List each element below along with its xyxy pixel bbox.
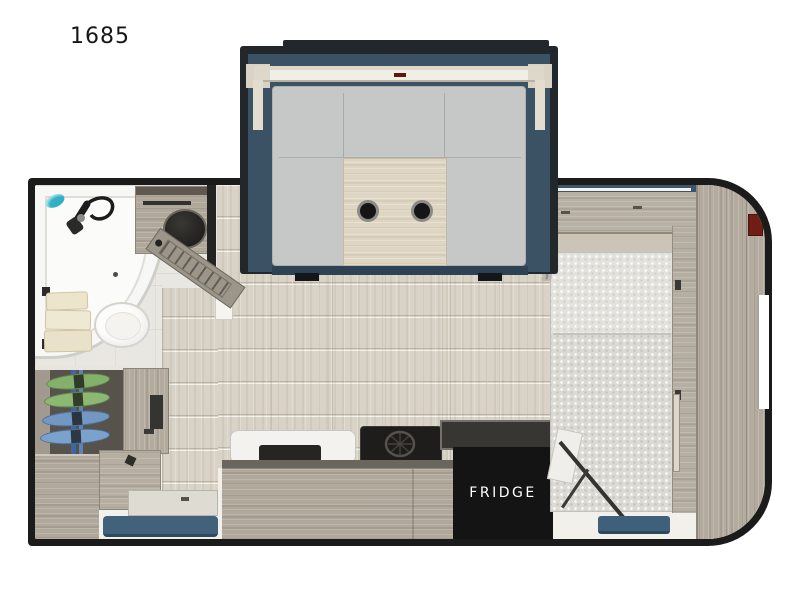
kitchen-counter-front	[222, 468, 458, 539]
cabinet-handle-icon	[144, 429, 154, 434]
gear-strap-icon	[73, 393, 84, 407]
couch-seam	[343, 93, 344, 159]
upper-cabinet	[123, 368, 169, 454]
fridge-label: FRIDGE	[469, 485, 536, 501]
headboard-latch-icon	[561, 211, 570, 214]
model-number-label: 1685	[70, 24, 130, 49]
towel-rack	[35, 280, 95, 360]
marker-light	[748, 214, 763, 236]
front-wardrobe	[696, 185, 765, 539]
vanity-backsplash	[136, 187, 207, 195]
floorplan: 1685	[0, 0, 800, 600]
slide-roller-tab	[478, 273, 502, 281]
slide-trim-pillar	[253, 80, 263, 130]
shower-head-icon	[57, 191, 127, 246]
slide-out-dinette	[240, 46, 558, 274]
toilet-seat	[105, 312, 141, 340]
slide-window-strip	[270, 70, 528, 80]
towel-bar-icon	[143, 201, 191, 205]
wardrobe-handle-icon	[673, 394, 680, 472]
slide-trim-pillar	[535, 80, 545, 130]
right-wall-window	[757, 295, 778, 409]
towel	[46, 291, 89, 310]
couch-seam	[444, 93, 445, 159]
towel	[44, 330, 92, 353]
shower-drain-icon	[113, 272, 118, 277]
mattress-seam	[553, 333, 671, 335]
burner-grate-icon	[383, 429, 417, 461]
drawer-handle-icon	[125, 455, 137, 467]
mattress-bolster	[551, 253, 673, 333]
gear-strap-icon	[73, 375, 84, 389]
bed-frame-strip	[550, 234, 674, 253]
entry-step	[128, 490, 218, 516]
window-outer-line	[769, 295, 772, 409]
bed-foot-step	[598, 516, 670, 534]
slide-roller-tab	[295, 273, 319, 281]
dinette-table	[343, 158, 447, 266]
cupholder-icon	[357, 200, 379, 222]
towel	[45, 310, 91, 331]
cupholder-icon	[411, 200, 433, 222]
counter-edge	[222, 460, 458, 468]
entry-mat	[103, 516, 218, 537]
counter-seam	[412, 469, 414, 539]
fridge: FRIDGE	[453, 447, 553, 539]
rail-hinge-icon	[675, 280, 681, 290]
window-inner-line	[757, 295, 759, 409]
shower-knob-icon	[77, 214, 85, 222]
gear-strap-icon	[71, 430, 82, 444]
slide-marker-icon	[394, 73, 406, 77]
bench-cabinet	[35, 454, 99, 539]
toilet	[94, 302, 150, 348]
headboard-latch-icon	[633, 206, 642, 209]
step-latch-icon	[181, 497, 189, 501]
corridor-floor	[162, 285, 218, 492]
gear-strap-icon	[72, 412, 83, 426]
wardrobe-seam	[746, 185, 747, 539]
window-slit	[551, 188, 691, 191]
counter-dark-slab	[440, 420, 554, 450]
kitchen-sink	[230, 430, 356, 464]
kitchen-stove	[360, 426, 442, 464]
cabinet-panel	[150, 395, 163, 429]
wardrobe-seam	[726, 185, 727, 539]
